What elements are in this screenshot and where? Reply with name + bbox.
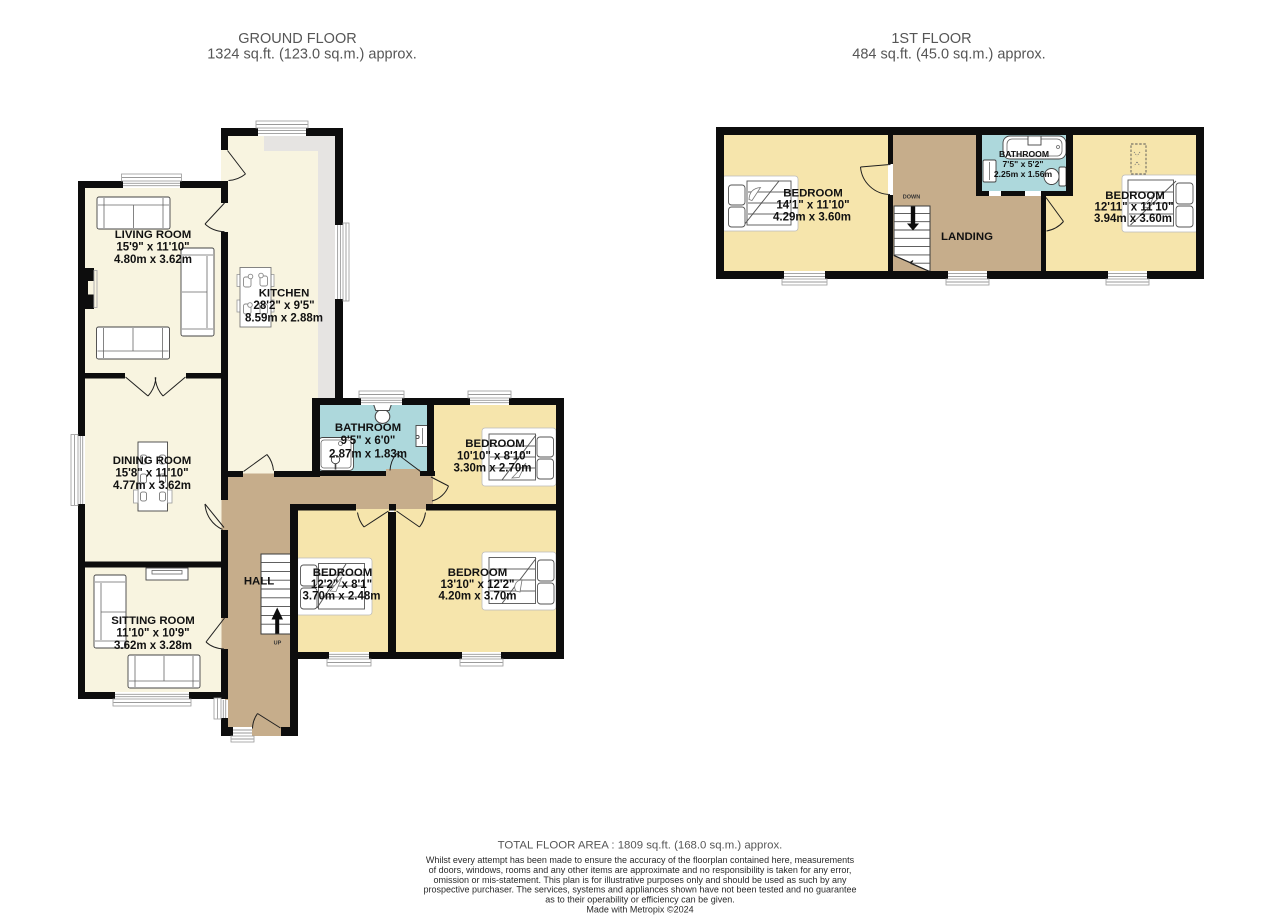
svg-text:9'5" x 6'0": 9'5" x 6'0" bbox=[341, 435, 396, 447]
svg-text:BEDROOM: BEDROOM bbox=[783, 188, 842, 200]
svg-text:1ST FLOOR: 1ST FLOOR bbox=[891, 31, 971, 47]
svg-text:as to their operability or eff: as to their operability or efficiency ca… bbox=[545, 895, 734, 905]
svg-text:4.77m x 3.62m: 4.77m x 3.62m bbox=[113, 480, 191, 492]
svg-text:4.20m x 3.70m: 4.20m x 3.70m bbox=[438, 591, 516, 603]
svg-text:omission or mis-statement. Thi: omission or mis-statement. This plan is … bbox=[433, 875, 847, 885]
svg-text:LANDING: LANDING bbox=[941, 231, 993, 243]
svg-text:Made with Metropix ©2024: Made with Metropix ©2024 bbox=[586, 905, 693, 915]
svg-text:TOTAL FLOOR AREA : 1809 sq.ft.: TOTAL FLOOR AREA : 1809 sq.ft. (168.0 sq… bbox=[498, 840, 783, 852]
svg-text:of doors, windows, rooms and a: of doors, windows, rooms and any other i… bbox=[429, 865, 852, 875]
svg-text:28'2" x 9'5": 28'2" x 9'5" bbox=[253, 300, 314, 312]
svg-text:13'10" x 12'2": 13'10" x 12'2" bbox=[441, 579, 515, 591]
svg-text:UP: UP bbox=[274, 641, 282, 647]
svg-text:DOWN: DOWN bbox=[903, 195, 920, 201]
svg-text:3.94m x 3.60m: 3.94m x 3.60m bbox=[1094, 213, 1172, 225]
svg-text:1324 sq.ft. (123.0 sq.m.) appr: 1324 sq.ft. (123.0 sq.m.) approx. bbox=[207, 47, 417, 63]
svg-text:GROUND FLOOR: GROUND FLOOR bbox=[238, 31, 356, 47]
svg-text:484 sq.ft. (45.0 sq.m.) approx: 484 sq.ft. (45.0 sq.m.) approx. bbox=[852, 47, 1045, 63]
svg-text:SITTING ROOM: SITTING ROOM bbox=[111, 615, 195, 627]
svg-text:14'1" x 11'10": 14'1" x 11'10" bbox=[776, 200, 849, 212]
svg-text:BATHROOM: BATHROOM bbox=[999, 149, 1049, 159]
svg-text:BATHROOM: BATHROOM bbox=[335, 422, 401, 434]
svg-text:7'5" x 5'2": 7'5" x 5'2" bbox=[1003, 159, 1044, 169]
svg-text:11'10" x 10'9": 11'10" x 10'9" bbox=[116, 628, 189, 640]
svg-text:HALL: HALL bbox=[244, 576, 274, 588]
svg-text:KITCHEN: KITCHEN bbox=[259, 288, 310, 300]
svg-text:15'9" x 11'10": 15'9" x 11'10" bbox=[116, 242, 189, 254]
svg-text:4.29m x 3.60m: 4.29m x 3.60m bbox=[773, 212, 851, 224]
svg-text:8.59m x 2.88m: 8.59m x 2.88m bbox=[245, 313, 323, 325]
svg-text:4.80m x 3.62m: 4.80m x 3.62m bbox=[114, 254, 192, 266]
svg-text:15'8" x 11'10": 15'8" x 11'10" bbox=[115, 468, 188, 480]
svg-text:DINING ROOM: DINING ROOM bbox=[113, 455, 191, 467]
svg-text:prospective purchaser. The ser: prospective purchaser. The services, sys… bbox=[423, 885, 856, 895]
svg-text:BEDROOM: BEDROOM bbox=[313, 567, 372, 579]
svg-text:BEDROOM: BEDROOM bbox=[1105, 190, 1164, 202]
svg-text:LIVING ROOM: LIVING ROOM bbox=[115, 229, 192, 241]
svg-text:2.87m x 1.83m: 2.87m x 1.83m bbox=[329, 449, 407, 461]
svg-text:3.30m x 2.70m: 3.30m x 2.70m bbox=[453, 463, 531, 475]
svg-text:Whilst every attempt has been: Whilst every attempt has been made to en… bbox=[426, 855, 855, 865]
svg-text:BEDROOM: BEDROOM bbox=[465, 438, 524, 450]
svg-text:3.70m x 2.48m: 3.70m x 2.48m bbox=[302, 591, 380, 603]
svg-text:10'10" x 8'10": 10'10" x 8'10" bbox=[457, 451, 531, 463]
svg-text:3.62m x 3.28m: 3.62m x 3.28m bbox=[114, 640, 192, 652]
svg-text:12'2" x 8'1": 12'2" x 8'1" bbox=[311, 579, 372, 591]
svg-text:12'11" x 11'10": 12'11" x 11'10" bbox=[1094, 202, 1173, 214]
svg-text:BEDROOM: BEDROOM bbox=[448, 567, 507, 579]
svg-text:2.25m x 1.56m: 2.25m x 1.56m bbox=[994, 169, 1053, 179]
